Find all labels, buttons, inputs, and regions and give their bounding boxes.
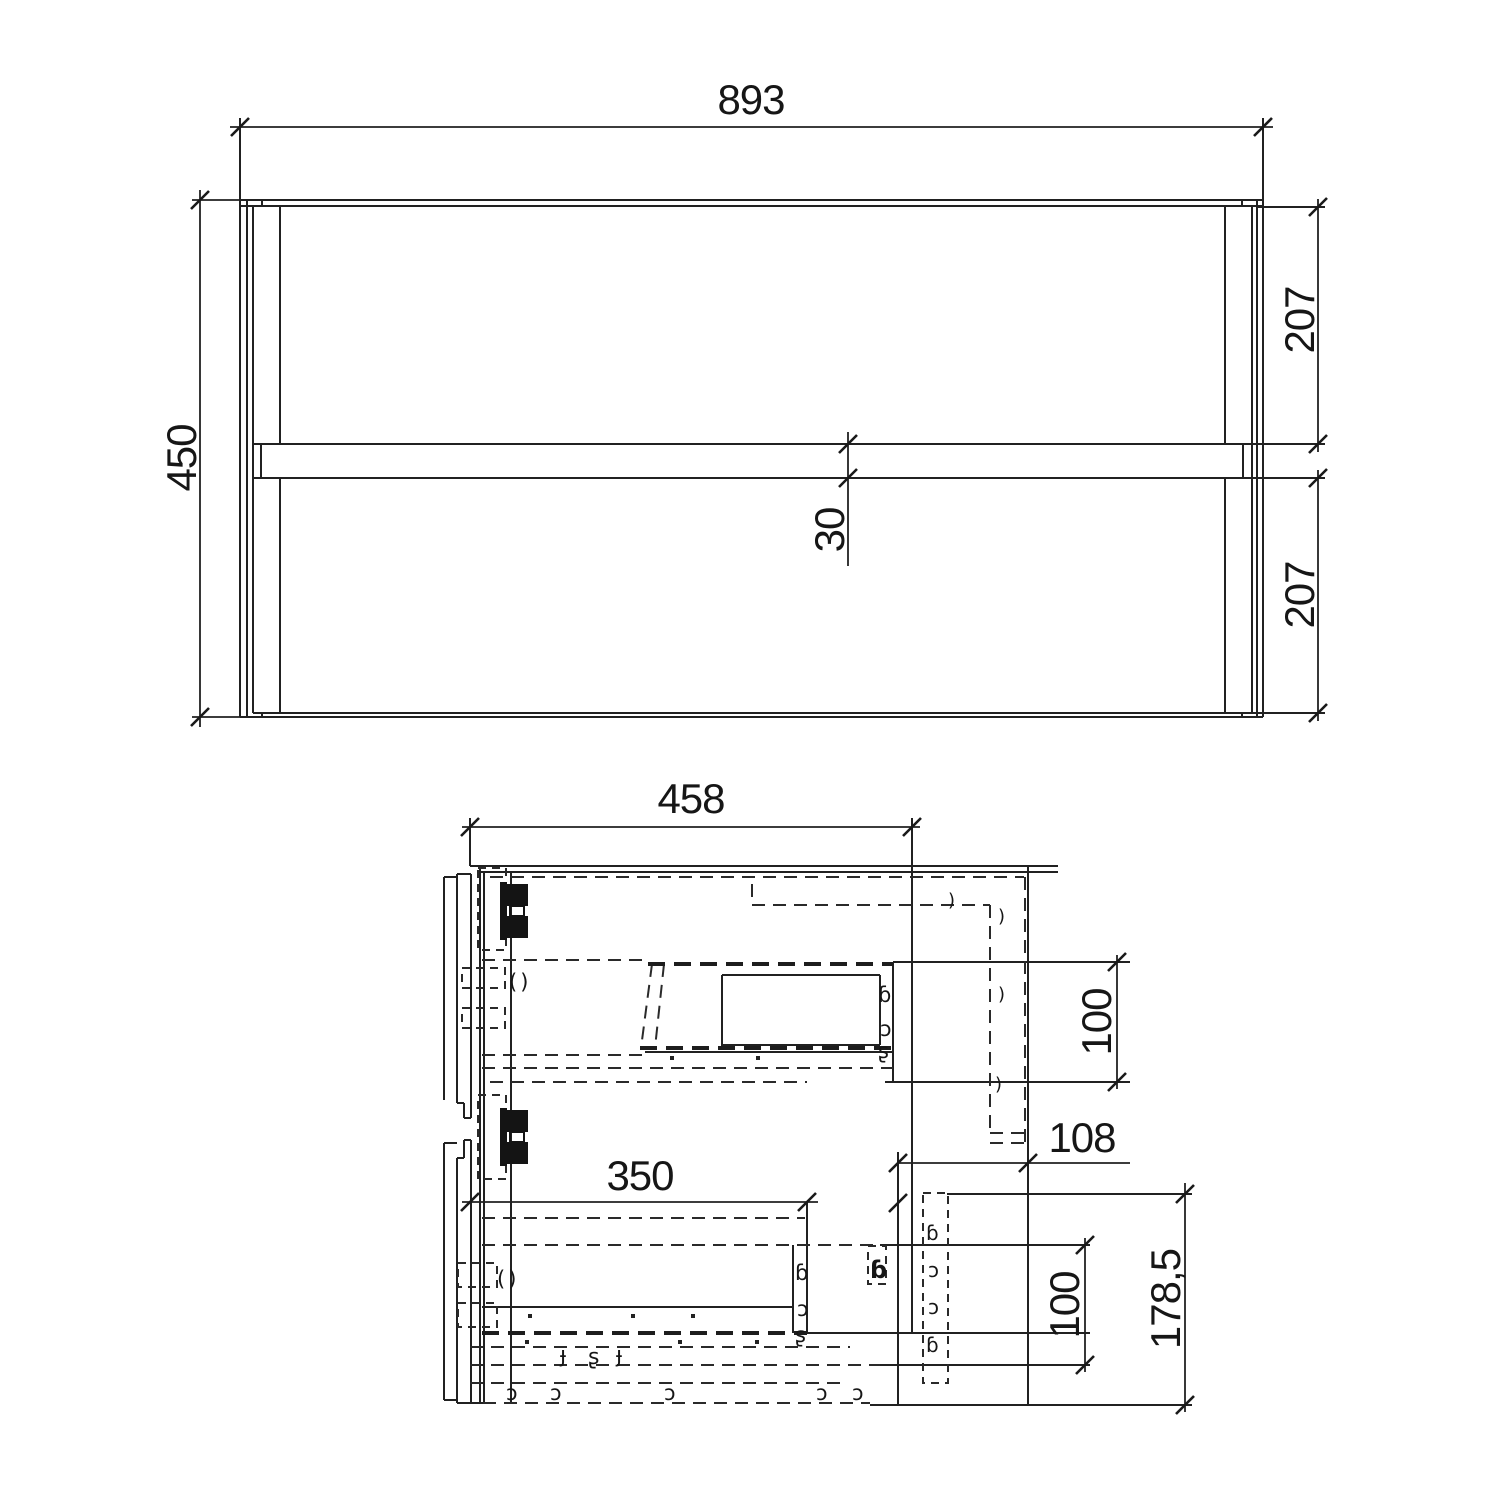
hardware-mark: ʂ [795,1323,806,1347]
dim-upper-front: 207 [1276,198,1327,453]
dim-upper-recess: 100 [1073,953,1126,1091]
dim-label-lower-recess: 100 [1041,1271,1088,1338]
screw-dots [525,1056,760,1344]
hinge-block-outlines [510,906,524,1142]
hardware-mark: ) [998,984,1005,1005]
hardware-mark: ʂ [588,1345,599,1370]
hardware-mark: ɟ [559,1343,566,1368]
dim-label-back-clearance: 108 [1048,1114,1115,1161]
hardware-mark: ) [995,1074,1002,1095]
dim-height: 450 [158,190,240,727]
hardware-mark: () [509,970,531,994]
hardware-mark: ʂ [878,1039,889,1063]
hardware-mark: ɔ [797,1297,809,1321]
cabinet-outline-front [240,118,1325,717]
dim-label-lower-zone-height: 178,5 [1142,1249,1189,1349]
hardware-mark: ɓ [795,1261,808,1285]
dim-label-upper-recess: 100 [1073,988,1120,1055]
dim-width: 893 [230,76,1273,136]
dim-lower-recess: 100 [1041,1236,1094,1374]
technical-drawing-canvas: 893 450 207 207 30 [0,0,1500,1500]
hardware-mark: ɔ [550,1381,562,1405]
dim-label-upper-front: 207 [1276,286,1323,353]
hardware-mark: ɔ [928,1258,939,1282]
front-elevation-view: 893 450 207 207 30 [158,76,1327,727]
dim-label-gap: 30 [806,508,853,553]
hardware-mark: ɓ [926,1221,939,1245]
dim-label-width: 893 [717,76,784,123]
hardware-mark: ) [948,890,955,911]
dim-back-clearance: 108 [889,1114,1130,1212]
hardware-mark: () [497,1267,519,1291]
hardware-mark: ɟ [615,1343,622,1368]
dim-depth: 458 [461,775,921,836]
drawer-box-edges [482,964,893,1333]
dim-gap: 30 [806,432,857,566]
dim-lower-front: 207 [1276,469,1327,722]
dim-label-depth: 458 [657,775,724,822]
hardware-mark: ɔ [664,1381,676,1405]
dim-label-inner-depth: 350 [606,1152,673,1199]
drawing-sheet: 893 450 207 207 30 [0,0,1500,1500]
dim-label-lower-front: 207 [1276,561,1323,628]
fitting-brackets [458,868,948,1383]
hardware-mark: ɔ [880,1017,892,1041]
dim-label-height: 450 [158,424,205,491]
hardware-mark: ɓ [870,1256,887,1284]
hardware-mark: ɓ [926,1333,939,1357]
hardware-mark: ɓ [878,983,891,1007]
hardware-mark: ɔ [506,1381,518,1405]
hardware-mark: ) [998,906,1005,927]
hardware-mark: ɔ [816,1381,828,1405]
hidden-lines-side [470,877,1025,1403]
dim-lower-zone-height: 178,5 [1142,1183,1194,1414]
hardware-mark: ɔ [852,1381,864,1405]
hardware-mark: ɔ [928,1295,939,1319]
side-section-view: () () ) ) ) ) ɓ ɔ ʂ ɓ ɔ ʂ ɓ ɓ ɔ ɔ ɓ ɟ ʂ … [444,775,1194,1414]
